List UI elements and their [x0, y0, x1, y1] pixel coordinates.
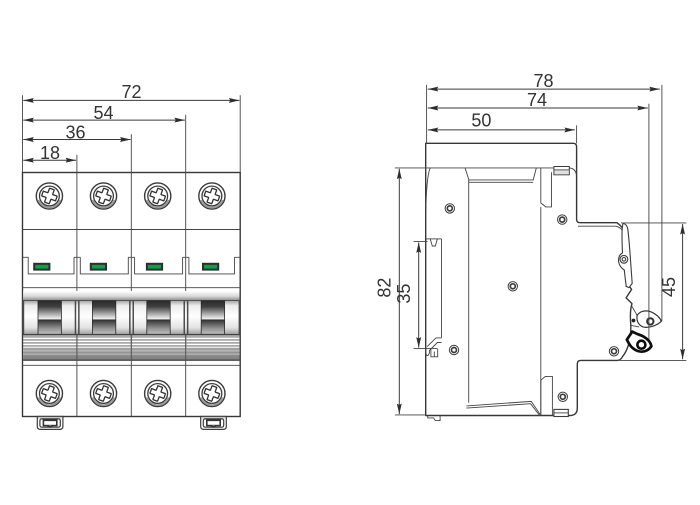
svg-text:18: 18: [40, 143, 60, 163]
svg-text:45: 45: [659, 277, 679, 297]
svg-text:50: 50: [471, 111, 491, 131]
svg-text:36: 36: [65, 122, 85, 142]
svg-text:78: 78: [533, 71, 553, 91]
svg-text:74: 74: [527, 90, 547, 110]
svg-text:82: 82: [375, 278, 395, 298]
svg-text:35: 35: [394, 284, 414, 304]
svg-text:54: 54: [93, 103, 113, 123]
svg-text:72: 72: [121, 82, 141, 102]
